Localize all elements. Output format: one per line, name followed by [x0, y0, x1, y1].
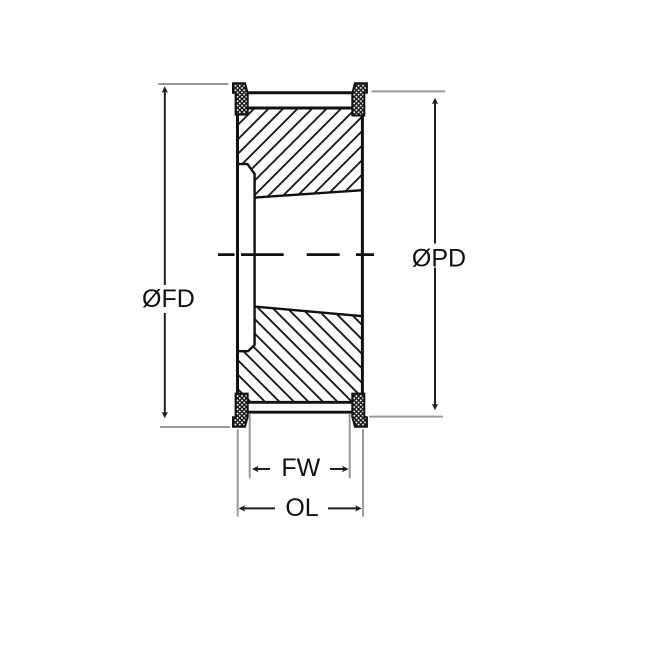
svg-text:ØFD: ØFD: [142, 285, 195, 313]
svg-text:ØPD: ØPD: [412, 244, 466, 272]
svg-text:FW: FW: [281, 454, 320, 482]
svg-text:OL: OL: [285, 494, 318, 522]
